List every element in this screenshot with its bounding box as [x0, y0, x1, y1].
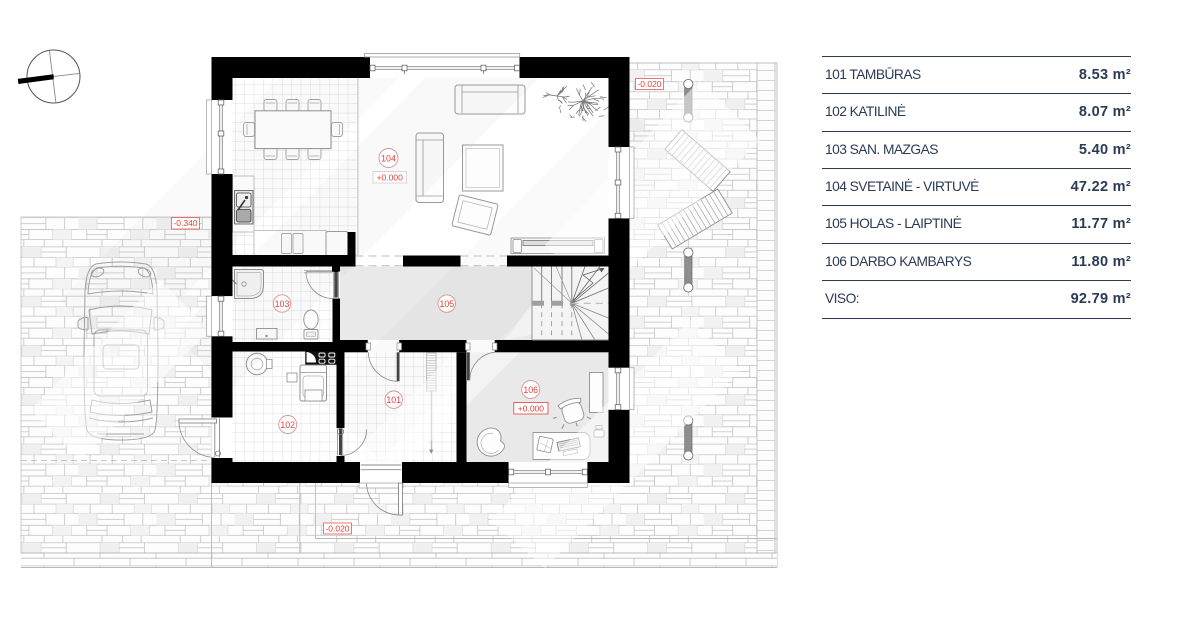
svg-text:+0.000: +0.000 [518, 403, 545, 413]
svg-text:104: 104 [381, 154, 396, 164]
svg-text:106: 106 [523, 385, 538, 395]
svg-text:-0.340: -0.340 [173, 218, 197, 228]
svg-text:105: 105 [439, 299, 454, 309]
svg-text:+0.000: +0.000 [377, 172, 404, 182]
svg-text:101: 101 [386, 395, 401, 405]
svg-text:102: 102 [280, 420, 295, 430]
svg-text:103: 103 [275, 299, 290, 309]
svg-text:-0.020: -0.020 [637, 79, 661, 89]
svg-text:-0.020: -0.020 [325, 524, 349, 534]
